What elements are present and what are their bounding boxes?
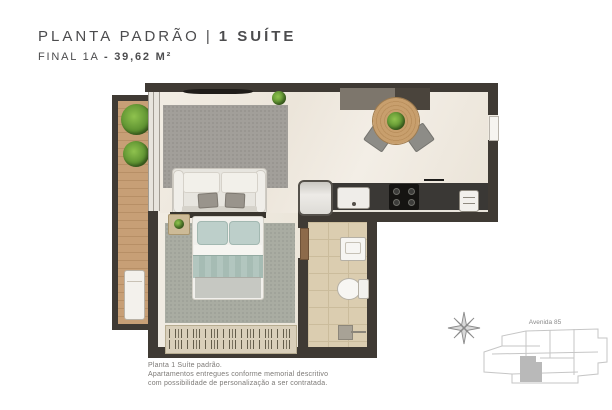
- keyplan-unit-highlight: [520, 356, 542, 382]
- nightstand-plant-icon: [174, 219, 184, 229]
- disclaimer: Planta 1 Suíte padrão. Apartamentos entr…: [148, 361, 328, 388]
- washer: [298, 180, 333, 216]
- wall-plant-icon: [272, 91, 286, 105]
- kitchen-sink: [337, 187, 370, 209]
- bed-sheet: [194, 245, 262, 255]
- subtitle-area: 39,62 M²: [114, 51, 172, 63]
- hanger-row-icon: [169, 329, 293, 338]
- page-title: PLANTA PADRÃO|1 SUÍTE: [38, 28, 296, 45]
- burner-icon: [408, 188, 415, 195]
- entry-door: [489, 116, 499, 141]
- bed-throw: [195, 277, 261, 298]
- left-wall: [148, 211, 158, 358]
- shower-arm-icon: [351, 331, 366, 333]
- keyplan-street-label: Avenida 85: [529, 319, 562, 326]
- disclaimer-line: Apartamentos entregues conforme memorial…: [148, 370, 328, 379]
- balcony-bottom-wall: [112, 324, 148, 330]
- burner-icon: [393, 199, 400, 206]
- subtitle-separator: -: [104, 51, 109, 63]
- wall-faucet-icon: [424, 179, 444, 181]
- title-main: PLANTA PADRÃO: [38, 28, 200, 45]
- bed-pillow: [197, 221, 228, 245]
- keyplan: Avenida 85: [480, 314, 610, 394]
- washbasin: [340, 237, 366, 261]
- disclaimer-line: com possibilidade de personalização a se…: [148, 379, 328, 388]
- floorplan: [112, 83, 498, 359]
- nightstand: [168, 214, 190, 235]
- burner-icon: [408, 199, 415, 206]
- table-plant-icon: [387, 112, 405, 130]
- subtitle-main: FINAL 1A: [38, 51, 99, 63]
- title-separator: |: [206, 28, 213, 45]
- toilet-tank: [358, 279, 369, 299]
- burner-icon: [393, 188, 400, 195]
- sliding-glass-door: [148, 92, 160, 211]
- compass-icon: [446, 310, 482, 346]
- right-wall-upper: [488, 83, 498, 115]
- double-bed: [192, 216, 264, 300]
- cooktop: [389, 184, 419, 210]
- lounger: [124, 270, 145, 320]
- disclaimer-line: Planta 1 Suíte padrão.: [148, 361, 328, 370]
- balcony-plant-icon: [123, 141, 149, 167]
- tv-panel: [183, 89, 253, 94]
- water-heater: [459, 190, 479, 212]
- wardrobe: [165, 325, 297, 354]
- bed-blanket: [193, 255, 263, 278]
- title-highlight: 1 SUÍTE: [219, 28, 297, 45]
- bathroom-door: [300, 228, 309, 260]
- throw-pillow: [198, 192, 219, 208]
- hanger-row-icon: [169, 340, 293, 349]
- sofa-cushion: [183, 172, 220, 193]
- bed-pillow: [229, 221, 260, 245]
- sofa-cushion: [221, 172, 258, 193]
- floorplan-page: PLANTA PADRÃO|1 SUÍTE FINAL 1A - 39,62 M…: [0, 0, 612, 410]
- throw-pillow: [225, 192, 246, 208]
- sofa: [172, 168, 267, 215]
- page-subtitle: FINAL 1A - 39,62 M²: [38, 51, 172, 63]
